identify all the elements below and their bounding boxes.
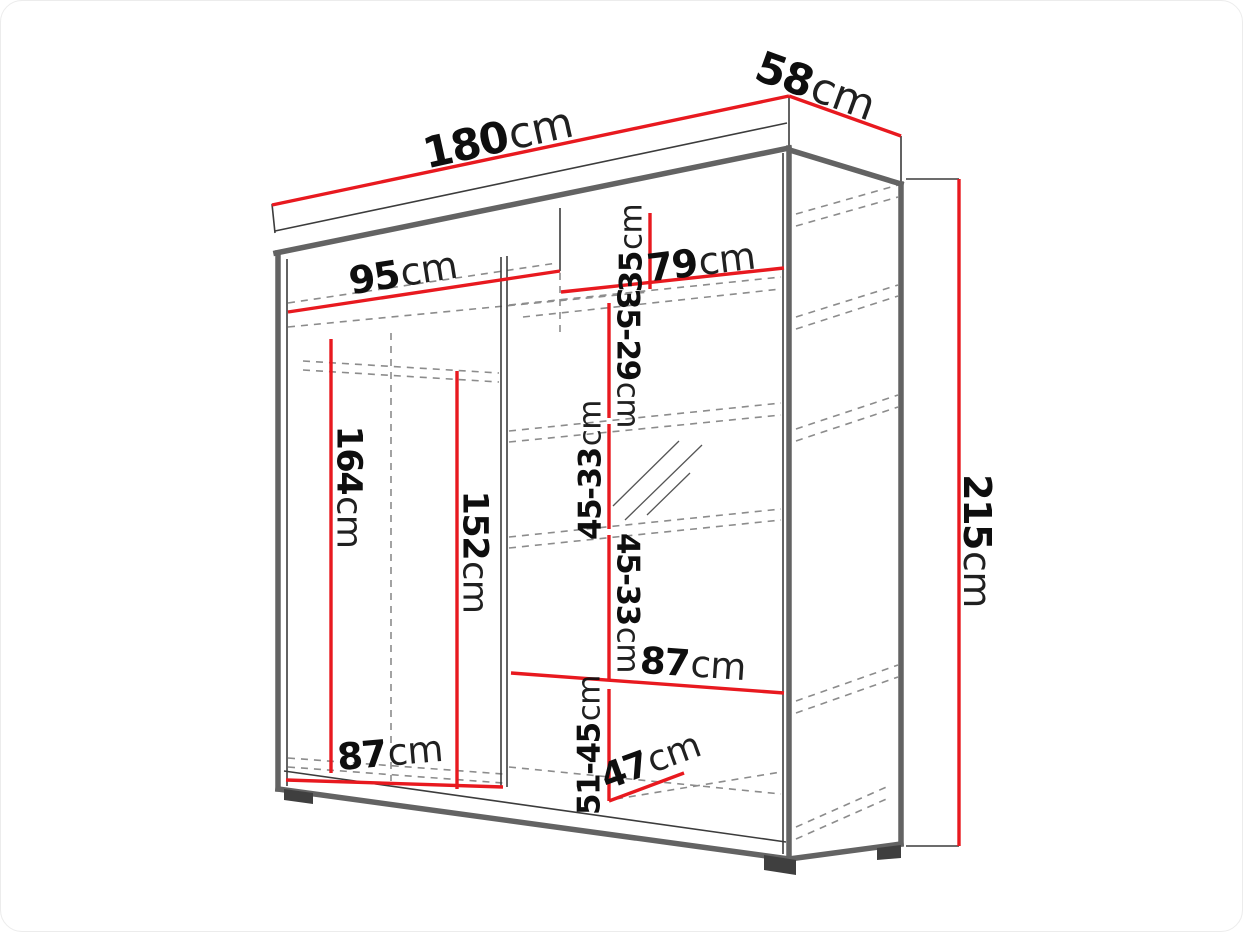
dim-label-shelf-gap-3: 45-33cm [612,533,643,673]
dim-label-shelf-width-right: 87cm [639,642,747,686]
dim-label-bottom-width-left: 87cm [336,730,445,776]
dim-label-hanging-height-right: 152cm [457,491,492,614]
dim-label-hanging-height-left: 164cm [331,426,366,549]
dim-label-shelf-gap-1: 35-29cm [612,288,643,428]
dim-label-top-shelf-gap: 35cm [617,204,648,292]
wardrobe-dimension-diagram: 180cm 58cm 215cm 95cm 79cm 35cm 35-29cm … [0,0,1243,932]
dim-label-total-height: 215cm [958,474,996,608]
dim-label-shelf-gap-2: 45-33cm [576,400,607,540]
dim-label-bottom-gap: 51-45cm [575,675,606,815]
mirror-hatch-icon [613,441,702,520]
